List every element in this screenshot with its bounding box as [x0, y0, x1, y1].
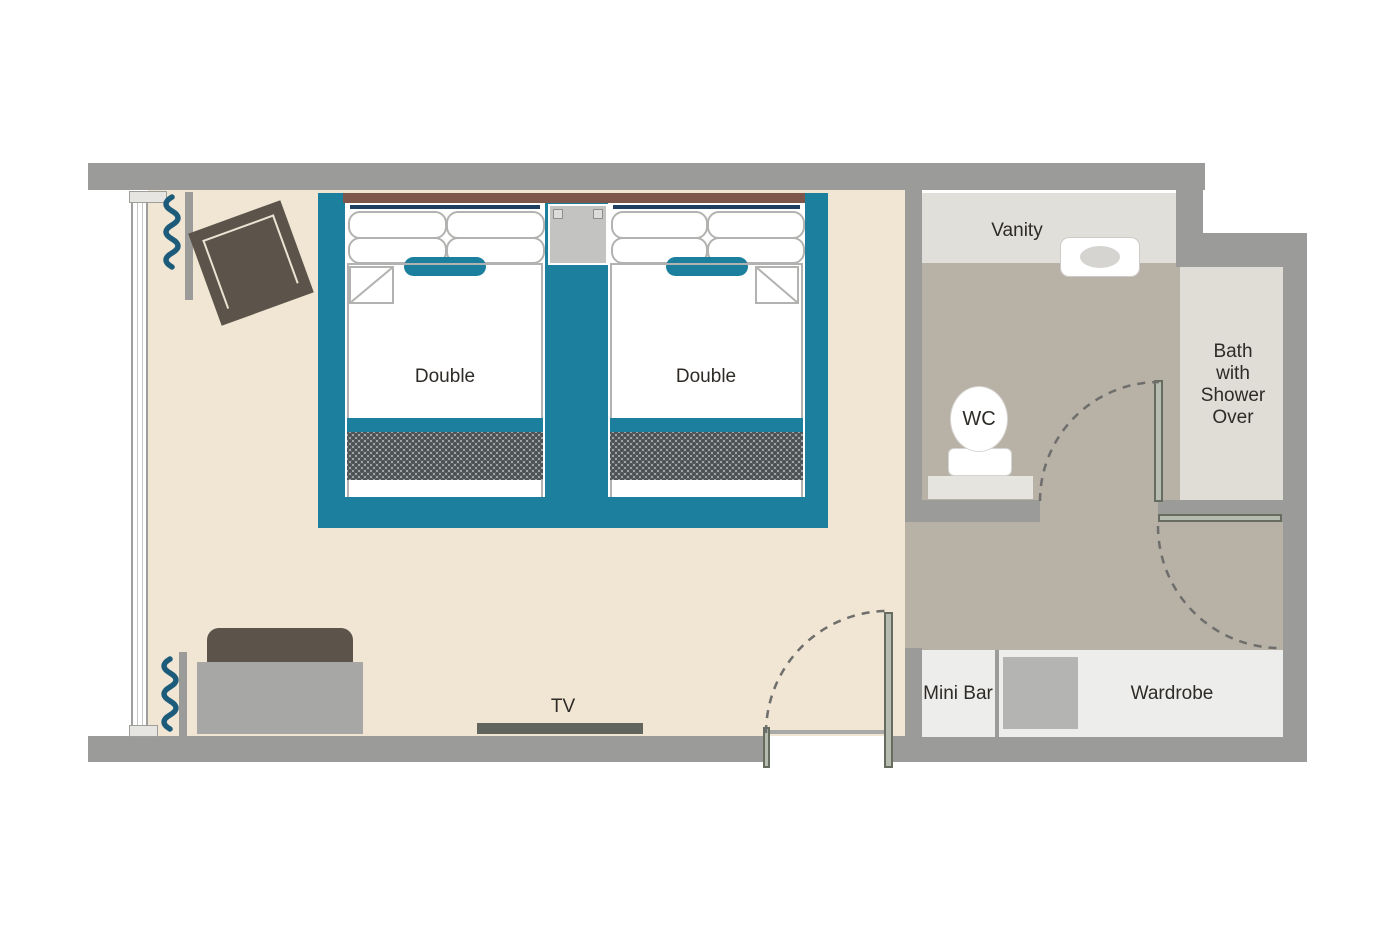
mini-bar-label: Mini Bar: [923, 683, 993, 705]
bed-2-duvet-fold: [756, 267, 798, 303]
vanity-label: Vanity: [991, 220, 1042, 242]
floor-plan: Double Double: [0, 0, 1400, 933]
curtain-top-icon: [166, 197, 178, 267]
bathroom-door-swing-arc: [1040, 382, 1159, 501]
curtain-bottom-icon: [164, 659, 176, 729]
tv-label: TV: [551, 696, 575, 718]
wc-label: WC: [962, 408, 995, 430]
bed-1-duvet-fold: [350, 267, 393, 303]
wardrobe-label: Wardrobe: [1131, 683, 1214, 705]
entrance-door-swing-arc: [766, 611, 888, 733]
plan-overlay: [0, 0, 1400, 933]
bath-label: Bath with Shower Over: [1201, 341, 1265, 429]
corridor-door-swing-arc: [1158, 526, 1280, 648]
